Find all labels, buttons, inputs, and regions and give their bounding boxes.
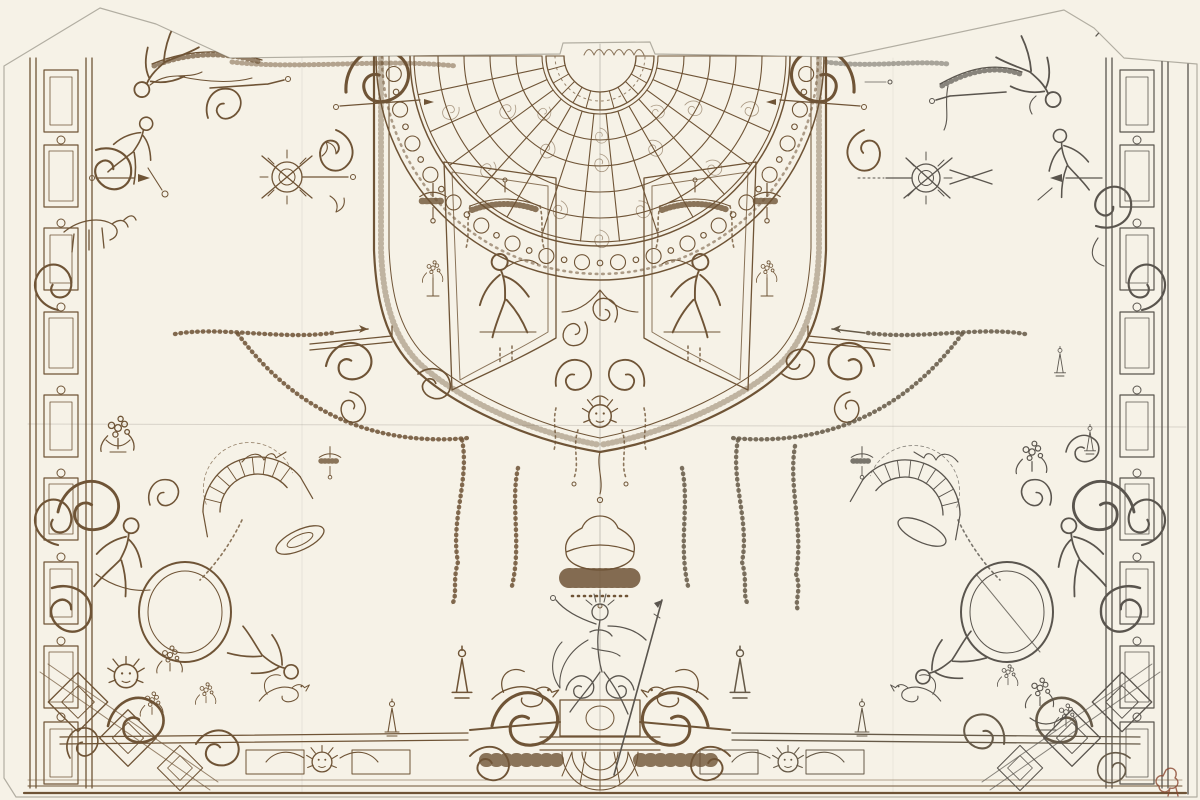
trophy-left: Sunburst-and-darts trophy medallion, upp… (260, 142, 356, 212)
crouching-figure-right (1039, 124, 1095, 198)
neptune-figure (551, 592, 663, 775)
oval-crease-line (976, 574, 1040, 652)
construction-lines: Graphite construction lines: vertical ce… (28, 44, 1186, 792)
ruffed-mask (108, 657, 144, 688)
paper-left-margin (4, 70, 28, 797)
corner-group-top-left: Upper-left corner group: tumbling figure… (64, 22, 291, 252)
trumpeter-figure (102, 109, 167, 186)
frieze-mask-left (307, 746, 338, 772)
reclining-figure-bl (87, 511, 155, 598)
cartouche-right-panel: Right inner panel with fringed canopy, t… (644, 162, 780, 390)
tumbling-figure-bl (225, 620, 309, 693)
cartouche-corner-scroll-left (337, 43, 414, 111)
collector-mark: Small dark red collector's mark near the… (1156, 768, 1178, 796)
flower-basket-right (1016, 441, 1047, 473)
top-frieze-rows (232, 62, 948, 84)
tumbling-figure-right (990, 32, 1075, 120)
right-border-band (1016, 58, 1188, 794)
artwork-canvas: Old master sheet: ornamental design for … (0, 0, 1200, 800)
seated-figure-right (666, 251, 726, 339)
paper-stains (70, 85, 1121, 650)
trophy-medallions: Sunburst-and-darts trophy medallion, upp… (260, 142, 992, 212)
paper-right-margin (1190, 66, 1197, 797)
tumbling-figure-left (120, 22, 205, 110)
frieze-mask-right (773, 746, 804, 772)
cartouche-left-panel: Left inner panel with fringed canopy, ta… (420, 162, 556, 390)
paper-top-margin (4, 8, 1197, 70)
reclining-figure-br (1045, 511, 1113, 598)
trellis-arch-left (181, 426, 313, 537)
oval-medallion-left (139, 562, 231, 662)
goat-figure (64, 216, 136, 252)
drawing-svg: Old master sheet: ornamental design for … (0, 0, 1200, 800)
dragon-left (255, 669, 311, 707)
cartouche-corner-scroll-right (786, 43, 863, 111)
obelisk-finial-left (452, 646, 472, 698)
obelisk-finial-right (730, 646, 750, 698)
seated-figure-left (473, 251, 533, 339)
